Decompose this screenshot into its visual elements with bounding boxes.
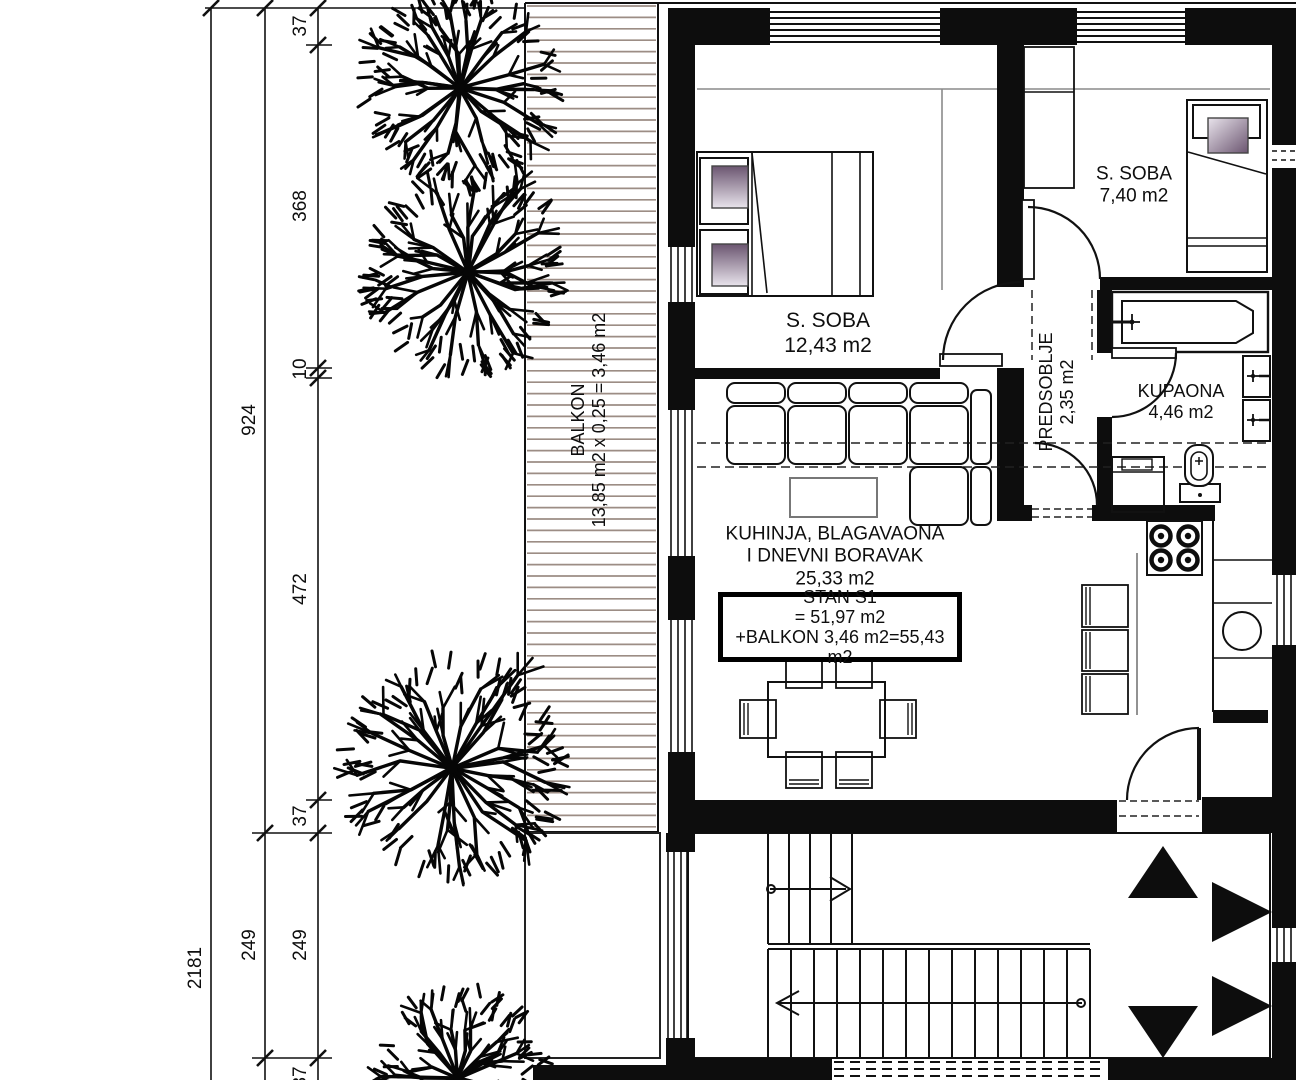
dim-924-label: 924 [239,404,261,436]
dim-37-top-label: 37 [290,15,312,36]
bathroom-name: KUPAONA [1138,381,1225,402]
balcony-calc: 13,85 m2 x 0,25 = 3,46 m2 [589,313,610,528]
hallway-label: PREDSOBLJE 2,35 m2 [1036,332,1078,451]
bathroom-area: 4,46 m2 [1138,402,1225,423]
bedroom1-area: 12,43 m2 [784,334,872,359]
dim-37-mid-label: 37 [290,805,312,826]
apartment-summary-box: STAN S1 = 51,97 m2 +BALKON 3,46 m2=55,43… [718,592,962,662]
bedroom2-label: S. SOBA 7,40 m2 [1096,164,1172,209]
balcony-label: BALKON 13,85 m2 x 0,25 = 3,46 m2 [568,313,610,528]
dim-472-label: 472 [290,573,312,605]
kitchen-living-label: KUHINJA, BLAGAVAONA I DNEVNI BORAVAK 25,… [726,523,945,590]
kitchen-living-line1: KUHINJA, BLAGAVAONA [726,523,945,545]
balcony-name: BALKON [568,313,589,528]
hallway-name: PREDSOBLJE [1036,332,1057,451]
bedroom2-area: 7,40 m2 [1096,186,1172,208]
dim-249-mid-label: 249 [239,929,261,961]
hallway-area: 2,35 m2 [1057,332,1078,451]
floor-plan: 2181 924 249 37 368 10 472 37 249 37 S. … [0,0,1296,1080]
dim-37-bottom-label: 37 [290,1066,312,1080]
dim-368-label: 368 [290,190,312,222]
bedroom1-name: S. SOBA [784,309,872,334]
dim-10-label: 10 [290,358,312,379]
dim-overall-label: 2181 [185,947,207,989]
bedroom1-label: S. SOBA 12,43 m2 [784,309,872,359]
apartment-id: STAN S1 [803,587,877,607]
dim-249-inner-label: 249 [290,929,312,961]
apartment-total: +BALKON 3,46 m2=55,43 m2 [723,627,957,667]
floorplan-canvas [0,0,1296,1080]
bedroom2-name: S. SOBA [1096,164,1172,186]
apartment-area: = 51,97 m2 [795,607,886,627]
kitchen-living-line2: I DNEVNI BORAVAK [726,546,945,568]
bathroom-label: KUPAONA 4,46 m2 [1138,381,1225,423]
